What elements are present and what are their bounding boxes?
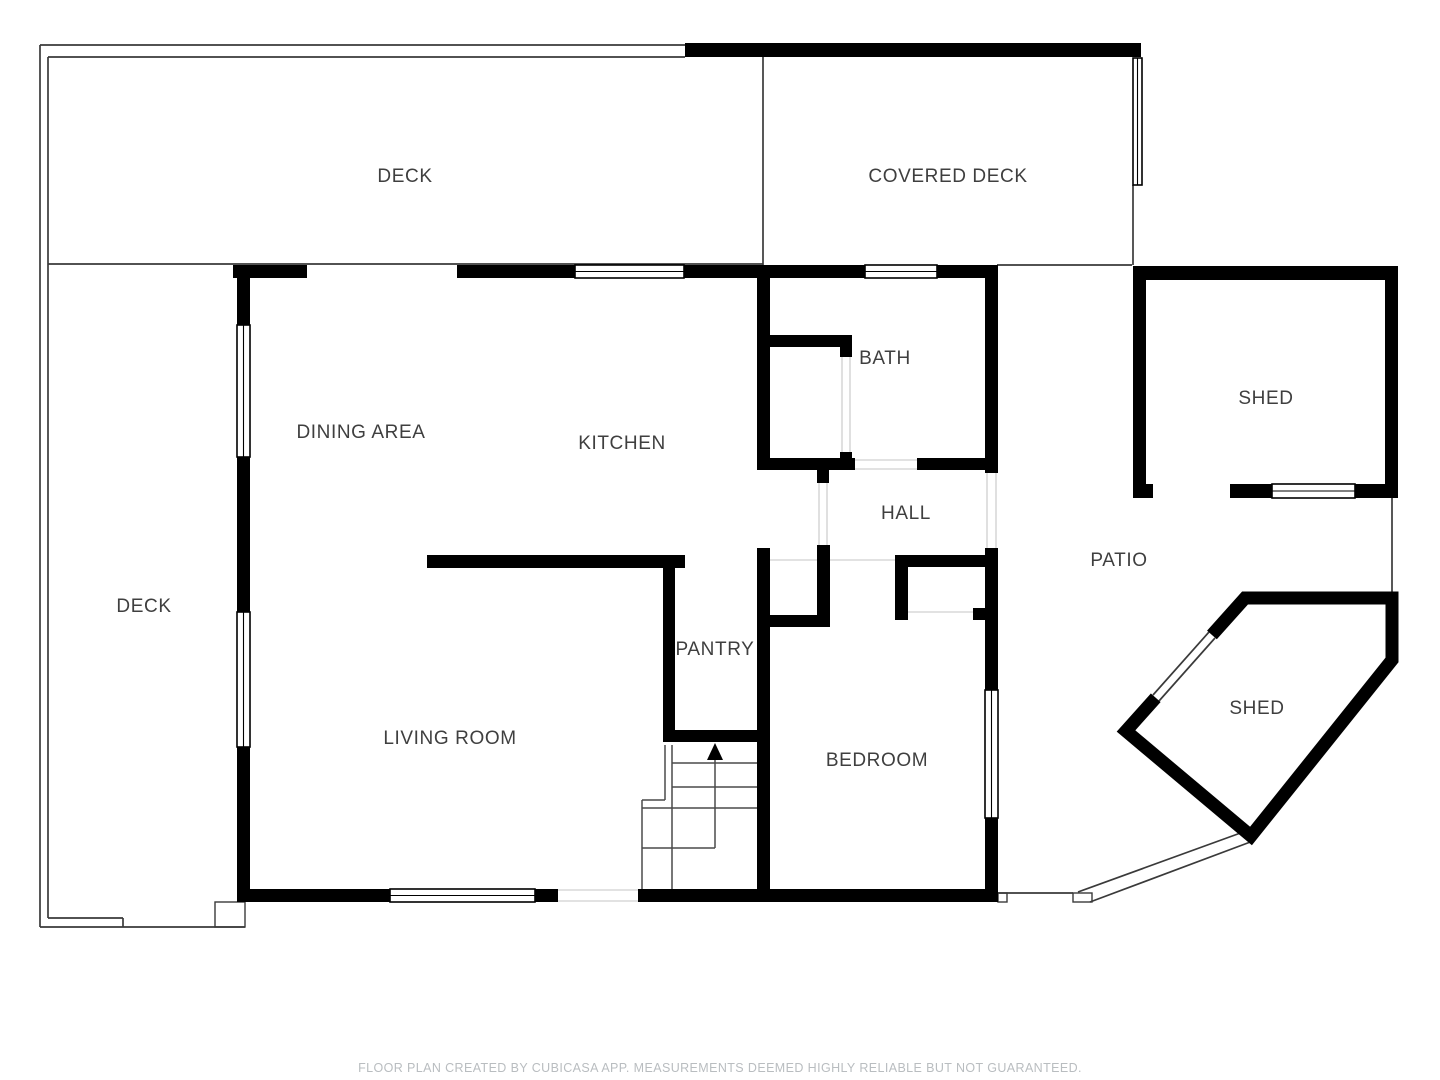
window [865,265,937,278]
covered-deck-outline [763,57,1133,265]
window [1272,484,1355,498]
room-label-shed-top: SHED [1238,388,1293,410]
room-label-deck-left: DECK [116,596,171,618]
room-label-bedroom: BEDROOM [826,750,928,772]
window [390,889,535,902]
stairs [642,743,757,889]
room-label-living-room: LIVING ROOM [383,728,516,750]
room-label-hall: HALL [881,503,931,525]
window [985,690,998,818]
room-label-kitchen: KITCHEN [578,433,666,455]
room-label-pantry: PANTRY [676,639,755,661]
room-label-dining-area: DINING AREA [296,422,425,444]
floor-plan: DECKCOVERED DECKSHEDBATHDINING AREAKITCH… [0,0,1440,1080]
room-label-patio: PATIO [1090,550,1147,572]
footer-disclaimer: FLOOR PLAN CREATED BY CUBICASA APP. MEAS… [358,1061,1082,1075]
window [575,265,684,278]
room-label-deck-top: DECK [377,166,432,188]
stairs-up-arrow-icon [707,743,723,760]
room-label-shed-bottom: SHED [1229,698,1284,720]
room-label-covered-deck: COVERED DECK [868,166,1027,188]
window [1133,58,1142,185]
floor-plan-drawing [0,0,1440,1080]
window [237,612,250,747]
patio-outline [997,265,1392,902]
room-label-bath: BATH [859,348,911,370]
window [237,325,250,457]
